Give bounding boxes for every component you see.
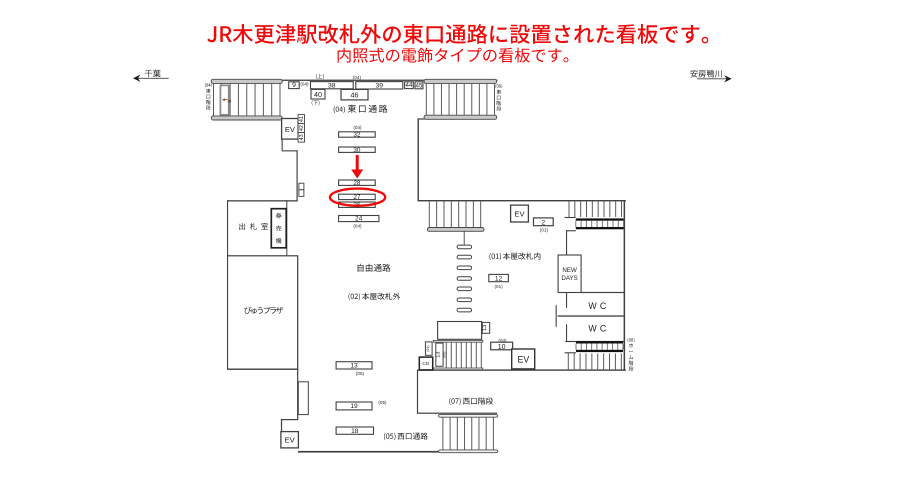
svg-text:9: 9 (292, 82, 296, 89)
svg-text:38: 38 (328, 82, 336, 89)
svg-text:(04): (04) (300, 82, 309, 87)
svg-text:8: 8 (227, 100, 232, 103)
svg-text:(05): (05) (378, 400, 387, 405)
svg-text:44: 44 (406, 82, 413, 89)
svg-text:18: 18 (351, 428, 359, 435)
svg-text:EV: EV (285, 436, 296, 445)
svg-text:46: 46 (351, 91, 359, 100)
svg-text:EV: EV (518, 354, 530, 364)
svg-text:DAYS: DAYS (561, 275, 577, 282)
svg-text:(04): (04) (353, 125, 362, 130)
svg-text:CD: CD (422, 361, 429, 367)
svg-text:28: 28 (353, 180, 361, 187)
svg-text:13: 13 (482, 325, 488, 331)
svg-text:(01): (01) (540, 227, 549, 232)
svg-text:EV: EV (514, 210, 525, 219)
svg-text:45: 45 (416, 82, 423, 89)
svg-text:40: 40 (314, 90, 322, 99)
svg-text:41: 41 (299, 116, 305, 122)
svg-text:(04): (04) (426, 345, 430, 351)
svg-text:EV: EV (285, 125, 296, 134)
svg-text:13: 13 (350, 363, 358, 370)
svg-text:43: 43 (299, 134, 305, 140)
svg-text:19: 19 (350, 403, 358, 410)
svg-text:W C: W C (588, 324, 607, 334)
svg-text:27: 27 (353, 194, 361, 201)
svg-text:42: 42 (299, 125, 305, 131)
svg-text:30: 30 (353, 147, 361, 154)
svg-text:39: 39 (376, 82, 384, 89)
svg-text:NEW: NEW (562, 267, 577, 274)
svg-text:32: 32 (353, 132, 361, 139)
svg-text:13: 13 (436, 351, 442, 357)
svg-text:(04): (04) (353, 224, 362, 229)
svg-text:(05): (05) (443, 351, 447, 357)
svg-text:W C: W C (588, 301, 607, 311)
svg-text:10: 10 (498, 344, 506, 351)
svg-text:12: 12 (495, 275, 503, 282)
svg-text:24: 24 (355, 216, 363, 223)
svg-text:(01): (01) (495, 284, 504, 289)
svg-text:(04): (04) (353, 75, 362, 80)
svg-text:2: 2 (541, 219, 545, 226)
svg-text:(05): (05) (356, 371, 365, 376)
